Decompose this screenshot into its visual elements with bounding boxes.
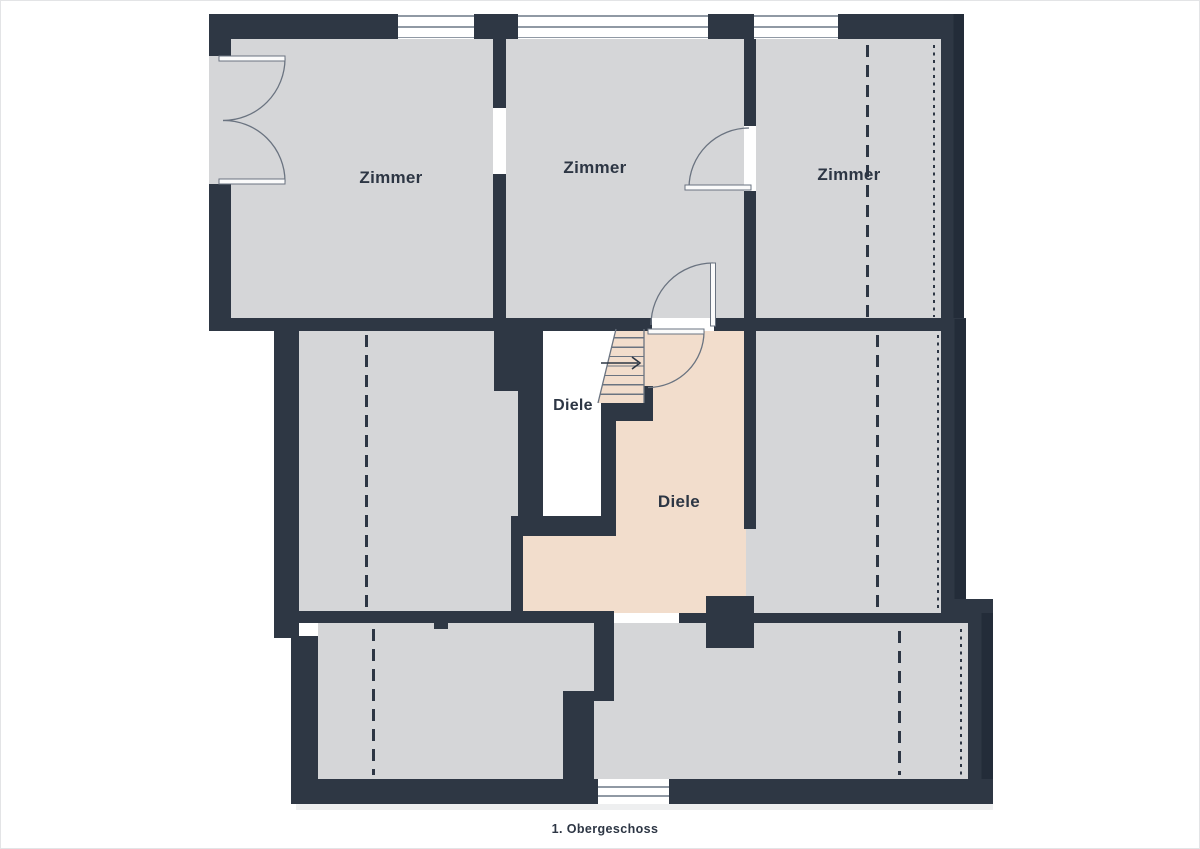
floor-caption: 1. Obergeschoss [552,822,659,836]
label-zimmer-top-left: Zimmer [359,168,422,188]
room-middle-right-floor [746,331,941,613]
label-diele-hall: Diele [658,492,700,512]
wall-bottom-outer-west [291,779,598,804]
stairwell-void [543,329,601,518]
label-zimmer-top-middle: Zimmer [563,158,626,178]
wall-pillar-hall-southeast [706,596,754,648]
slope-dotted-middle-right [937,335,939,609]
wall-stairwell-south [511,516,616,536]
wall-pillar-arm [679,613,706,623]
room-bottom-right-floor [594,623,968,779]
wall-stairwell-east [601,421,616,518]
wall-hall-east [744,331,756,529]
wall-z2-z3-upper [744,39,756,126]
floor-plan-page: Zimmer Zimmer Zimmer Diele Diele 1. Ober… [0,0,1200,849]
wall-stairwell-west [518,391,543,518]
window-top-2 [518,14,708,39]
window-top-3 [754,14,838,39]
door-recess-top-left [209,56,231,184]
wall-bottom-band-top-bump [434,623,448,629]
wall-bottom-outer-east [669,779,993,804]
floor-plan-canvas: Zimmer Zimmer Zimmer Diele Diele 1. Ober… [1,1,1199,848]
label-zimmer-top-right: Zimmer [817,165,880,185]
slope-dotted-bottom-right [960,629,962,777]
wall-z2-z3-lower [744,191,756,331]
slope-dashed-middle-left [365,335,368,607]
stairs-winder-treads [598,329,644,403]
room-bottom-left-floor [318,623,594,779]
wall-z1-z2-upper [493,39,506,108]
wall-hall-west-strip [511,536,523,623]
wall-top-outer-c [708,14,754,39]
wall-right-top [941,14,964,319]
slope-dashed-bottom-left [372,629,375,775]
room-zimmer-top-middle-floor [506,39,744,318]
slope-dotted-top-right [933,45,935,317]
wall-right-bottom [968,613,993,804]
wall-left-middle [274,318,299,638]
wall-mid-horizontal-east [714,318,966,331]
wall-bottom-band-top [299,611,614,623]
wall-top-outer-b [474,14,518,39]
slope-dashed-bottom-right [898,631,901,775]
slope-dashed-middle-right [876,335,879,609]
wall-under-stairs-horizontal [601,403,653,421]
hall-diele-lower-floor [523,536,616,613]
wall-bottom-shadow [296,804,993,810]
window-top-1 [398,14,474,39]
wall-top-outer-a [209,14,398,39]
wall-left-top-upper [209,14,231,56]
wall-bottom-divider-upper [594,612,614,701]
wall-bottomright-room-top [754,613,971,623]
window-bottom [598,779,669,804]
wall-left-top-lower [209,184,231,331]
wall-stairwell-west-block [494,321,543,391]
room-middle-left-floor [299,331,518,613]
wall-z1-z2-lower [493,174,506,331]
label-diele-stairwell: Diele [553,397,593,415]
wall-right-middle [941,319,966,613]
